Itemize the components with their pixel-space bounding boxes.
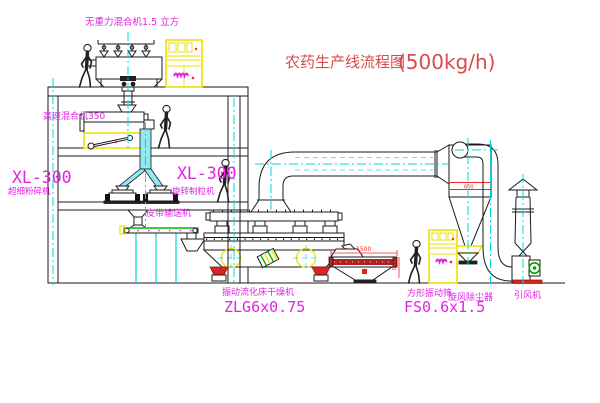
- dryer-feed-hopper: [181, 239, 205, 251]
- dimension-screen-length: 1500: [356, 246, 371, 253]
- drawing-title: 农药生产线流程图: [285, 53, 405, 71]
- belt-conveyor: [120, 226, 205, 283]
- label-dryer-name: 振动流化床干燥机: [222, 286, 294, 298]
- dimension-screen-height: 340: [390, 260, 396, 271]
- label-granulator-model: XL-300: [177, 164, 237, 183]
- control-cabinet-upper: [166, 40, 202, 87]
- label-mill-name: 超细粉碎机: [8, 186, 51, 197]
- granulator-unit-left: [104, 186, 141, 204]
- label-mill-model: XL-300: [12, 168, 72, 187]
- label-cyclone: 旋风除尘器: [448, 291, 493, 303]
- worker-figure: [409, 240, 421, 283]
- label-zero-gravity-mixer: 无重力混合机1.5 立方: [85, 16, 179, 28]
- process-flow-drawing: 无重力混合机1.5 立方 农药生产线流程图 (500kg/h) 高速混合机350…: [0, 0, 600, 403]
- dimension-cyclone-band: 600: [464, 185, 474, 191]
- diagram-canvas: 无重力混合机1.5 立方 农药生产线流程图 (500kg/h) 高速混合机350…: [0, 0, 600, 403]
- control-cabinet-lower: [429, 230, 457, 283]
- label-dryer-model: ZLG6x0.75: [224, 298, 305, 316]
- label-fan: 引风机: [514, 289, 541, 301]
- induced-draft-fan: [512, 256, 542, 284]
- drawing-title-capacity: (500kg/h): [398, 50, 495, 74]
- fluid-bed-dryer: [204, 211, 344, 281]
- label-belt-conveyor: 皮带输送机: [146, 207, 191, 219]
- label-granulator-name: 旋转制粒机: [172, 186, 215, 197]
- exhaust-duct: [251, 150, 437, 212]
- worker-figure: [159, 105, 171, 148]
- label-high-speed-mixer: 高速混合机350: [43, 110, 105, 122]
